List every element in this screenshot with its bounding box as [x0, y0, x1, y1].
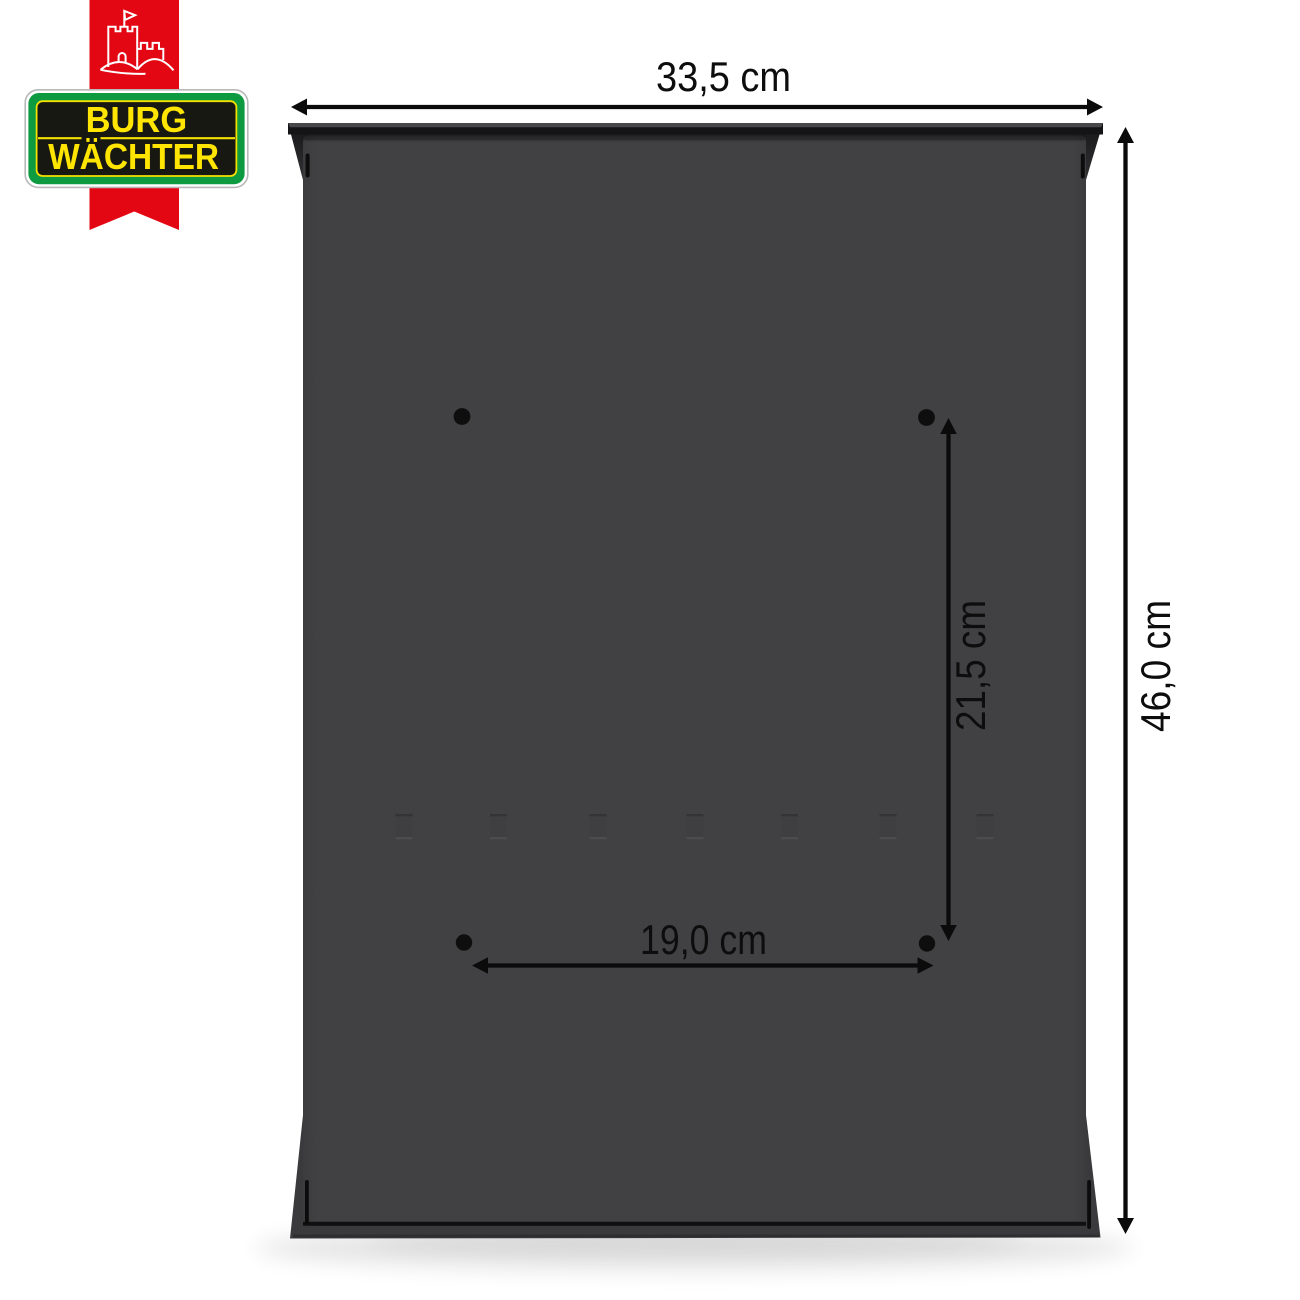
- svg-text:46,0 cm: 46,0 cm: [1132, 600, 1179, 732]
- svg-text:WÄCHTER: WÄCHTER: [48, 136, 219, 177]
- svg-text:BURG: BURG: [86, 99, 188, 140]
- svg-text:33,5 cm: 33,5 cm: [656, 53, 791, 100]
- svg-text:19,0 cm: 19,0 cm: [640, 916, 767, 963]
- svg-text:21,5 cm: 21,5 cm: [947, 600, 994, 731]
